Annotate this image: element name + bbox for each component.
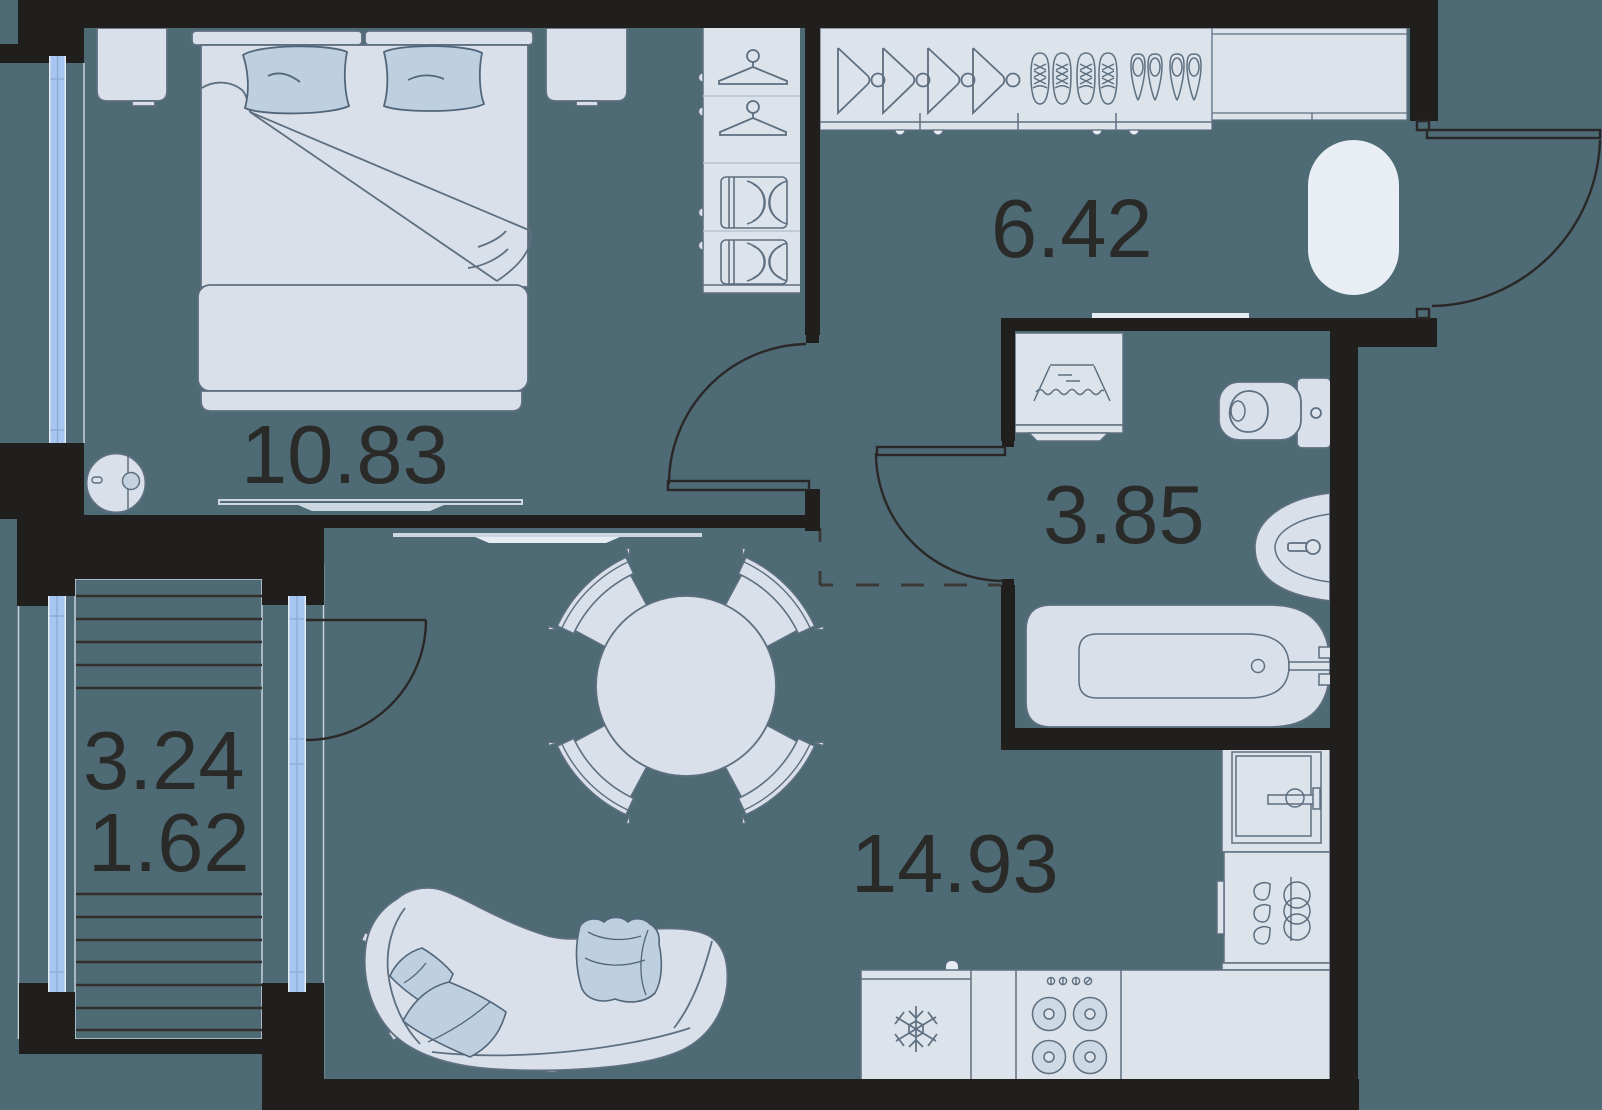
svg-text:3.85: 3.85 [1043,468,1205,561]
svg-text:6.42: 6.42 [991,182,1153,275]
svg-text:10.83: 10.83 [241,408,449,501]
svg-text:1.62: 1.62 [88,796,250,889]
svg-text:3.24: 3.24 [83,714,245,807]
svg-text:14.93: 14.93 [851,817,1059,910]
